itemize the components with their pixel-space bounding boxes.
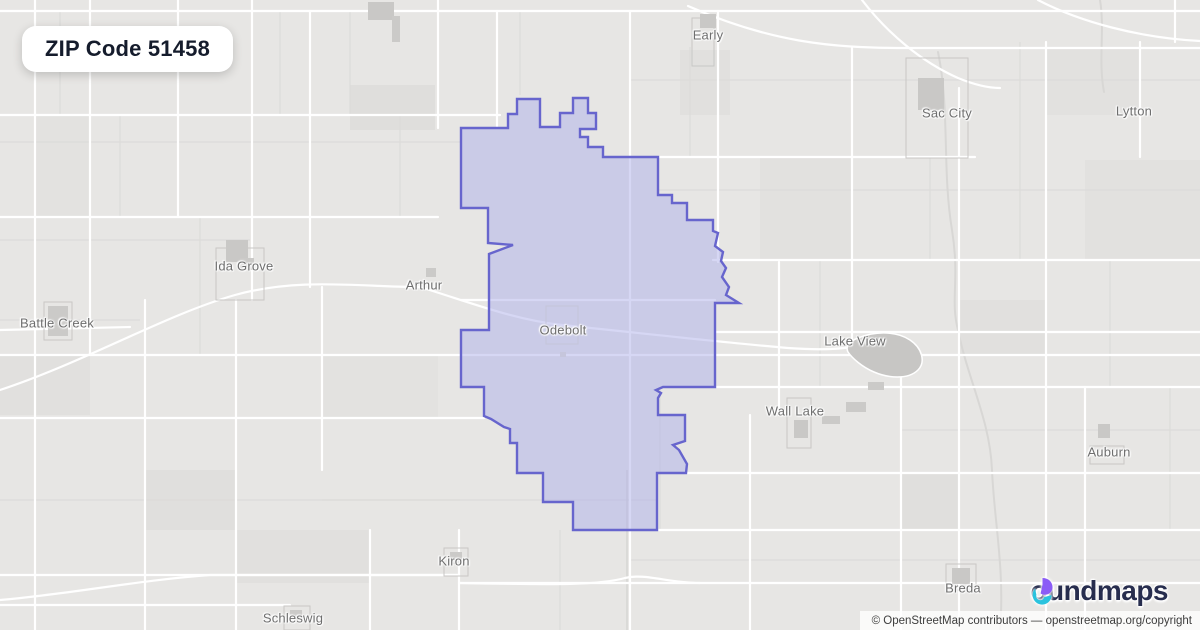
town-label-odebolt: Odebolt: [540, 323, 587, 338]
zip-code-badge: ZIP Code 51458: [22, 26, 233, 72]
town-label-schleswig: Schleswig: [263, 611, 323, 626]
town-label-lytton: Lytton: [1116, 104, 1152, 119]
town-label-auburn: Auburn: [1087, 445, 1130, 460]
attribution-text: © OpenStreetMap contributors — openstree…: [872, 615, 1192, 627]
town-label-kiron: Kiron: [438, 554, 469, 569]
attribution-bar[interactable]: © OpenStreetMap contributors — openstree…: [860, 611, 1200, 630]
town-label-sac-city: Sac City: [922, 106, 972, 121]
town-label-lake-view: Lake View: [824, 334, 886, 349]
boundmaps-drop-icon: [1030, 577, 1055, 607]
map-art: [0, 0, 1200, 630]
boundmaps-logo[interactable]: oundmaps: [1030, 577, 1168, 605]
zip-code-badge-title: ZIP Code 51458: [45, 36, 210, 61]
town-label-early: Early: [693, 28, 724, 43]
map-canvas: EarlySac CityLyttonIda GroveArthurBattle…: [0, 0, 1200, 630]
town-label-ida-grove: Ida Grove: [215, 259, 274, 274]
town-label-battle-creek: Battle Creek: [20, 316, 94, 331]
town-label-wall-lake: Wall Lake: [766, 404, 824, 419]
town-label-arthur: Arthur: [406, 278, 443, 293]
town-label-breda: Breda: [945, 581, 981, 596]
